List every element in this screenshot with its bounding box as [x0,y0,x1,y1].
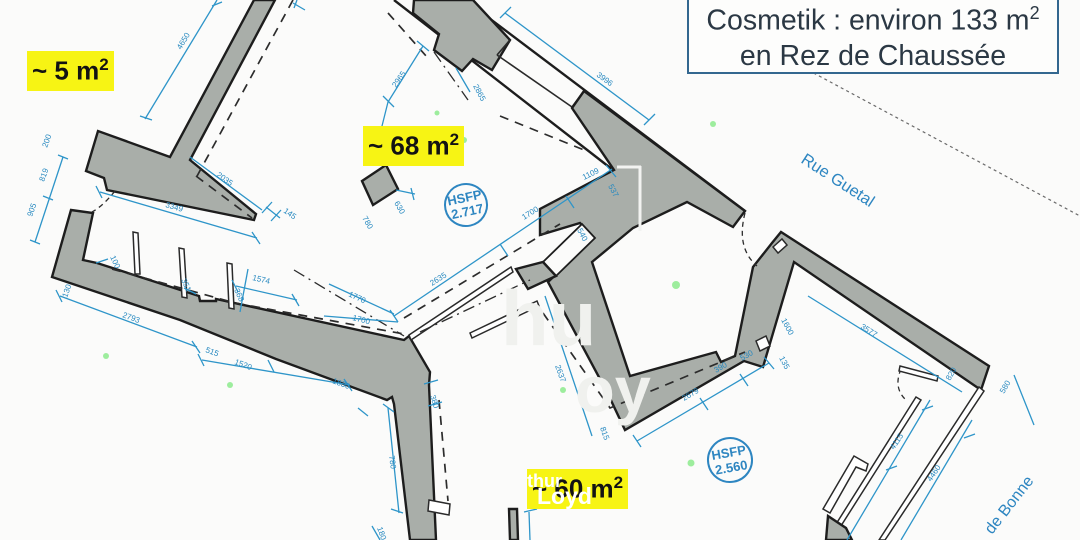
svg-text:oy: oy [575,353,651,426]
svg-text:780: 780 [387,455,398,470]
svg-text:hu: hu [501,274,596,362]
